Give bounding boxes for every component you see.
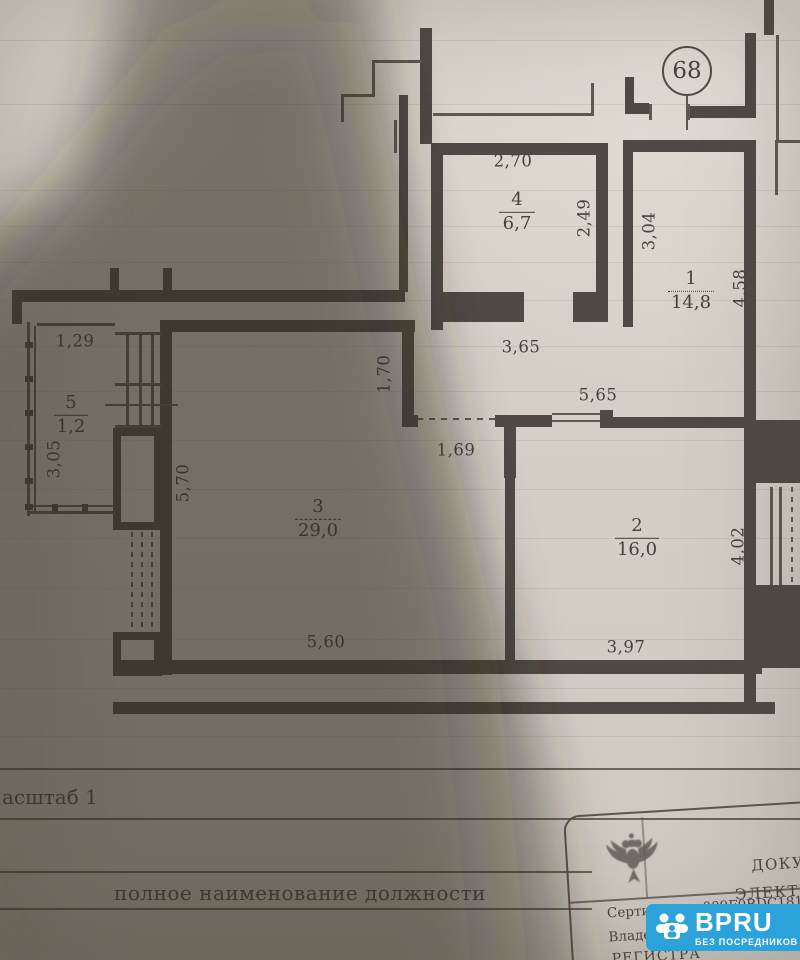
wall-right: [744, 140, 756, 714]
dim-458: 4,58: [731, 269, 750, 308]
room-number: 4: [499, 190, 535, 211]
dim-560: 5,60: [307, 633, 346, 652]
wall-room4-right: [596, 143, 608, 292]
wall-stub: [110, 268, 119, 294]
stamp-line1: ДОКУМ: [751, 852, 800, 874]
room-area: 14,8: [668, 293, 714, 314]
balcony-rail: [34, 326, 36, 514]
wall-neighbor-block: [756, 420, 800, 483]
thin-wall-line: [775, 140, 778, 195]
room-number: 3: [295, 497, 341, 518]
wall-bottom: [113, 660, 762, 674]
wall-staircase: [420, 28, 432, 144]
room-number: 5: [54, 393, 88, 414]
dim-169: 1,69: [437, 441, 476, 460]
ruled-line: [0, 871, 592, 873]
unit-number-circle: 68: [662, 46, 712, 96]
room-label-4: 4 6,7: [499, 190, 535, 234]
thin-wall-line: [776, 35, 779, 140]
balcony-rail-tick: [25, 444, 33, 450]
balcony-rail: [27, 511, 115, 514]
thin-wall-line: [433, 113, 593, 116]
balcony-rail-tick: [25, 504, 33, 510]
thin-wall-line: [341, 94, 344, 122]
wall-corridor: [399, 95, 408, 292]
paper-line: [0, 40, 800, 41]
paper-line: [0, 346, 800, 347]
bpru-tagline: БЕЗ ПОСРЕДНИКОВ: [695, 937, 798, 947]
wall-room2-top: [613, 417, 744, 428]
wall-entry: [745, 33, 756, 118]
ruled-line: [0, 908, 592, 910]
wall-segment: [12, 290, 22, 324]
opening-line: [552, 420, 600, 422]
wall-room1-left: [623, 150, 633, 327]
wall-room4-corner: [573, 292, 608, 322]
window-dashed-line: [791, 487, 793, 585]
room-number: 2: [615, 516, 659, 537]
balcony-rail-tick: [25, 410, 33, 416]
dim-402: 4,02: [729, 527, 748, 566]
paper-line: [0, 736, 800, 737]
dim-397: 3,97: [607, 638, 646, 657]
bpru-brand-text: BPRU: [695, 909, 798, 935]
room-label-1: 1 14,8: [668, 269, 714, 313]
wall-room1-top: [623, 140, 756, 152]
balcony-rail: [27, 322, 30, 516]
ruled-line: [0, 768, 800, 770]
balcony-window-line: [105, 404, 178, 406]
wall-partition: [505, 478, 515, 668]
balcony-rail-tick: [52, 504, 58, 513]
balcony-window-line: [126, 332, 129, 428]
balcony-rail-tick: [25, 342, 33, 348]
dim-570: 5,70: [174, 464, 193, 503]
window-dashed-line: [131, 532, 133, 630]
wall-neighbor: [764, 0, 774, 35]
dim-305: 3,05: [45, 440, 64, 479]
balcony-rail: [30, 505, 115, 507]
wall-room4-bottom: [431, 292, 524, 322]
thin-wall-line: [341, 94, 375, 97]
wall-neighbor-block: [756, 585, 800, 668]
balcony-window-line: [151, 332, 154, 428]
balcony-window-line: [115, 383, 162, 386]
window-dashed-line: [151, 532, 153, 630]
wall-partition-top: [504, 415, 516, 478]
thin-wall-line: [372, 60, 422, 63]
wall-foot: [402, 415, 418, 427]
dim-129: 1,29: [56, 332, 95, 351]
thin-wall-line: [394, 120, 397, 153]
room-area: 1,2: [54, 417, 88, 438]
bpru-watermark: BPRU БЕЗ ПОСРЕДНИКОВ: [646, 904, 800, 951]
wall-block: [600, 410, 613, 428]
paper-line: [0, 588, 800, 589]
vent-shaft-block: [113, 428, 162, 530]
thin-wall-line: [775, 140, 800, 143]
room-label-3: 3 29,0: [295, 497, 341, 541]
room-area: 29,0: [295, 521, 341, 542]
paper-line: [0, 391, 800, 392]
wall-entry: [625, 103, 649, 114]
balcony-rail-tick: [82, 504, 88, 513]
dim-249: 2,49: [575, 199, 594, 238]
wall-segment: [12, 290, 405, 302]
opening-line: [552, 413, 600, 415]
dim-270: 2,70: [494, 152, 533, 171]
wall-outer-bottom: [113, 702, 775, 714]
signature-caption: полное наименование должности: [114, 881, 486, 905]
balcony-rail-tick: [25, 376, 33, 382]
dim-304: 3,04: [640, 212, 659, 251]
unit-number: 68: [672, 58, 701, 84]
paper-line: [0, 538, 800, 539]
photo-of-floor-plan-document: 68 2,70 2,49 3,04 4,58 3,65 1,70 5,65 1,…: [0, 0, 800, 960]
people-group-icon: [654, 911, 690, 945]
double-eagle-emblem-icon: [602, 829, 664, 894]
room-number: 1: [668, 269, 714, 290]
thin-wall-line: [372, 60, 375, 97]
balcony-window-line: [139, 332, 142, 428]
room-area: 16,0: [615, 540, 659, 561]
room-label-2: 2 16,0: [615, 516, 659, 560]
dim-170: 1,70: [375, 355, 394, 394]
opening-dashed-line: [417, 418, 495, 420]
window-dashed-line: [141, 532, 143, 630]
dim-565: 5,65: [579, 386, 618, 405]
room-label-5: 5 1,2: [54, 393, 88, 437]
unit-leader-line: [686, 96, 688, 130]
door-jamb: [649, 104, 652, 120]
balcony-window-line: [115, 425, 162, 428]
wall-inner: [402, 320, 414, 427]
paper-line: [0, 688, 800, 689]
window-line: [779, 487, 782, 585]
wall-room3-top: [160, 320, 415, 332]
dim-365: 3,65: [502, 338, 541, 357]
balcony-window-line: [115, 332, 162, 335]
room-area: 6,7: [499, 214, 535, 235]
balcony-rail: [37, 323, 115, 326]
scale-caption: асштаб 1: [2, 785, 98, 809]
balcony-rail-tick: [25, 478, 33, 484]
wall-stub: [163, 268, 172, 294]
thin-wall-line: [591, 83, 594, 116]
window-line: [770, 487, 773, 585]
